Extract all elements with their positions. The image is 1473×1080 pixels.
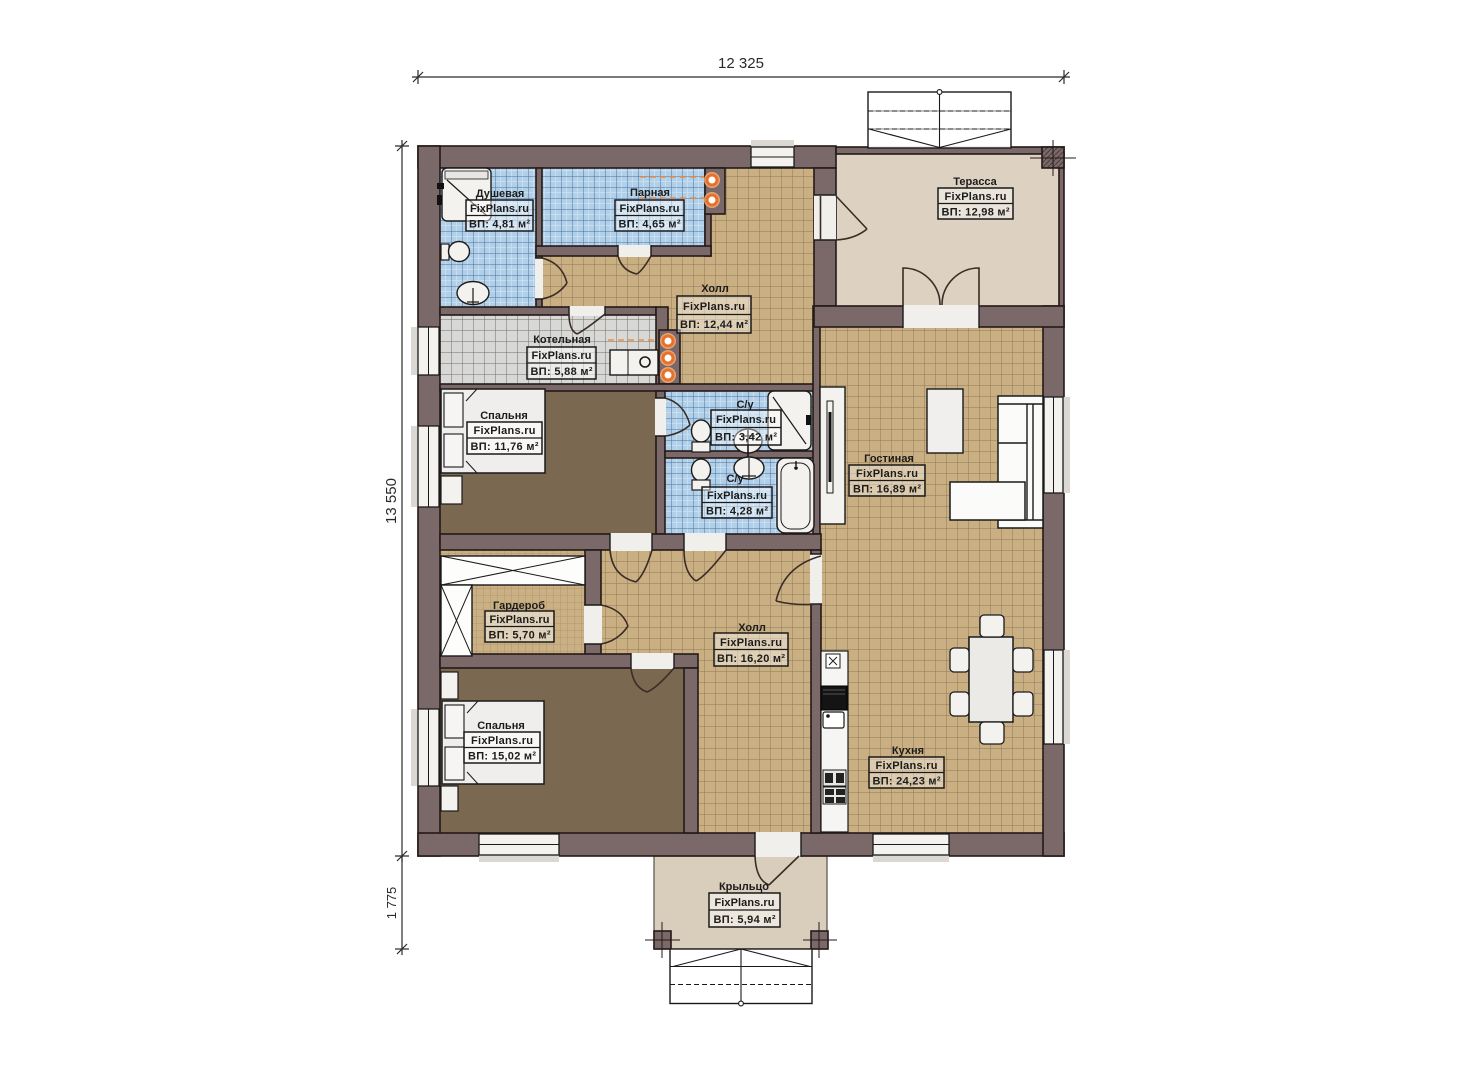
svg-text:Душевая: Душевая bbox=[476, 188, 525, 200]
svg-text:1 775: 1 775 bbox=[384, 887, 399, 920]
svg-text:ВП: 4,81 м²: ВП: 4,81 м² bbox=[469, 219, 530, 231]
svg-text:ВП: 24,23 м²: ВП: 24,23 м² bbox=[873, 776, 941, 788]
svg-text:FixPlans.ru: FixPlans.ru bbox=[532, 350, 592, 362]
svg-text:FixPlans.ru: FixPlans.ru bbox=[474, 425, 536, 437]
svg-text:ВП: 15,02 м²: ВП: 15,02 м² bbox=[468, 751, 536, 763]
svg-text:Спальня: Спальня bbox=[480, 410, 528, 422]
svg-text:Холл: Холл bbox=[738, 622, 766, 634]
svg-text:Кухня: Кухня bbox=[892, 745, 924, 757]
svg-text:FixPlans.ru: FixPlans.ru bbox=[720, 637, 782, 649]
svg-text:ВП: 5,70 м²: ВП: 5,70 м² bbox=[489, 630, 551, 642]
svg-text:FixPlans.ru: FixPlans.ru bbox=[715, 897, 775, 909]
svg-text:ВП: 4,65 м²: ВП: 4,65 м² bbox=[619, 219, 681, 231]
svg-text:FixPlans.ru: FixPlans.ru bbox=[620, 203, 680, 215]
svg-text:ВП: 12,98 м²: ВП: 12,98 м² bbox=[942, 207, 1010, 219]
svg-text:FixPlans.ru: FixPlans.ru bbox=[707, 490, 767, 502]
svg-text:Гостиная: Гостиная bbox=[864, 453, 914, 465]
svg-text:ВП: 5,94 м²: ВП: 5,94 м² bbox=[714, 914, 776, 926]
svg-text:Холл: Холл bbox=[701, 283, 729, 295]
svg-text:FixPlans.ru: FixPlans.ru bbox=[945, 191, 1007, 203]
svg-text:ВП: 5,88 м²: ВП: 5,88 м² bbox=[531, 366, 593, 378]
svg-text:Крыльцо: Крыльцо bbox=[719, 881, 769, 893]
svg-text:FixPlans.ru: FixPlans.ru bbox=[716, 414, 776, 426]
svg-text:FixPlans.ru: FixPlans.ru bbox=[490, 614, 550, 626]
svg-text:С/у: С/у bbox=[736, 399, 754, 411]
svg-text:FixPlans.ru: FixPlans.ru bbox=[683, 301, 745, 313]
svg-text:ВП: 16,89 м²: ВП: 16,89 м² bbox=[853, 484, 921, 496]
svg-text:FixPlans.ru: FixPlans.ru bbox=[470, 203, 529, 215]
svg-text:Котельная: Котельная bbox=[533, 334, 591, 346]
svg-text:12 325: 12 325 bbox=[718, 55, 764, 72]
svg-text:ВП: 16,20 м²: ВП: 16,20 м² bbox=[717, 653, 785, 665]
svg-text:FixPlans.ru: FixPlans.ru bbox=[876, 760, 938, 772]
svg-text:С/у: С/у bbox=[726, 473, 744, 485]
svg-text:ВП: 12,44 м²: ВП: 12,44 м² bbox=[680, 319, 748, 331]
svg-text:Спальня: Спальня bbox=[477, 720, 525, 732]
svg-text:Гардероб: Гардероб bbox=[493, 600, 545, 612]
svg-text:Парная: Парная bbox=[630, 187, 670, 199]
svg-text:ВП: 11,76 м²: ВП: 11,76 м² bbox=[471, 441, 539, 453]
svg-text:13 550: 13 550 bbox=[383, 478, 400, 524]
svg-text:FixPlans.ru: FixPlans.ru bbox=[856, 468, 918, 480]
svg-text:FixPlans.ru: FixPlans.ru bbox=[471, 735, 533, 747]
svg-text:ВП: 3,42 м²: ВП: 3,42 м² bbox=[715, 432, 777, 444]
svg-text:ВП: 4,28 м²: ВП: 4,28 м² bbox=[706, 506, 768, 518]
svg-text:Терасса: Терасса bbox=[953, 176, 997, 188]
